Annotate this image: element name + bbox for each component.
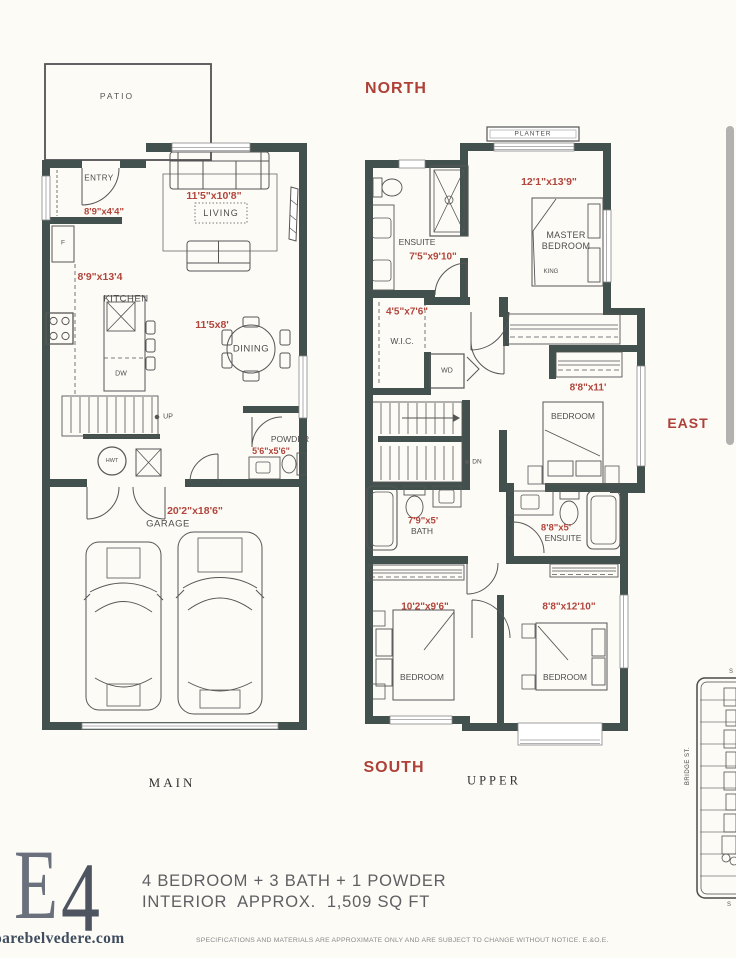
map-fragment-bottom: S (727, 902, 731, 908)
bedroom3-dimension: 10'2"x9'6" (401, 602, 449, 613)
ensuite2-dimension: 8'8"x5' (541, 523, 571, 534)
ensuite-label: ENSUITE (399, 237, 436, 247)
garage-label: GARAGE (146, 519, 190, 530)
upper-floor-title: UPPER (467, 774, 521, 789)
dining-label: DINING (233, 344, 269, 355)
master-bedroom-label: MASTER BEDROOM (540, 230, 592, 252)
garage-dimension: 20'2"x18'6" (167, 505, 223, 517)
stairs-up-label: UP (163, 414, 173, 421)
floorplan-page: PATIO ENTRY 8'9"x4'4" 11'5"x10'8" LIVING… (0, 0, 736, 958)
king-bed-label: KING (544, 269, 559, 275)
bridge-street-label: BRIDGE ST. (685, 747, 691, 785)
powder-label: POWDER (271, 434, 309, 444)
wic-label: W.I.C. (390, 336, 413, 346)
floorplan-drawing (0, 0, 736, 958)
compass-east-label: EAST (667, 415, 708, 431)
main-floor-plan (42, 64, 307, 730)
summary-line2: INTERIOR APPROX. 1,509 SQ FT (142, 893, 430, 912)
website-text: oarebelvedere.com (0, 930, 125, 948)
living-label: LIVING (203, 208, 239, 218)
hot-water-tank-label: HWT (106, 458, 119, 464)
living-dimension: 11'5"x10'8" (186, 190, 241, 202)
planter-label: PLANTER (515, 131, 552, 138)
entry-label: ENTRY (84, 174, 113, 183)
bedroom4-label: BEDROOM (543, 672, 587, 682)
site-map (697, 678, 736, 898)
disclaimer-text: SPECIFICATIONS AND MATERIALS ARE APPROXI… (196, 937, 609, 944)
upper-floor-plan (365, 127, 645, 745)
bath-dimension: 7'9"x5' (408, 516, 438, 527)
patio-label: PATIO (100, 91, 134, 101)
ensuite-dimension: 7'5"x9'10" (409, 252, 457, 263)
e4-logo-4: 4 (61, 859, 100, 937)
ensuite2-label: ENSUITE (545, 533, 582, 543)
powder-dimension: 5'6"x5'6" (252, 446, 290, 456)
bedroom2-label: BEDROOM (551, 411, 595, 421)
bedroom3-label: BEDROOM (400, 672, 444, 682)
dining-dimension: 11'5x8' (195, 319, 229, 331)
map-fragment-top: S (729, 669, 733, 675)
bath-label: BATH (411, 526, 433, 536)
scrollbar-thumb[interactable] (726, 126, 734, 445)
washer-dryer-label: WD (441, 368, 453, 375)
master-dimension: 12'1"x13'9" (521, 176, 577, 188)
e4-logo-e: E (14, 846, 58, 924)
dishwasher-label: DW (115, 371, 127, 378)
summary-line1: 4 BEDROOM + 3 BATH + 1 POWDER (142, 872, 446, 891)
fridge-label: F (61, 240, 65, 247)
compass-north-label: NORTH (365, 80, 427, 98)
kitchen-dimension: 8'9"x13'4 (77, 271, 122, 283)
entry-dimension: 8'9"x4'4" (84, 207, 124, 218)
main-floor-title: MAIN (149, 775, 196, 791)
wic-dimension: 4'5"x7'6" (386, 307, 428, 318)
kitchen-label: KITCHEN (103, 294, 148, 305)
e4-logo: E 4 (14, 846, 111, 924)
compass-south-label: SOUTH (364, 759, 425, 777)
bedroom4-dimension: 8'8"x12'10" (542, 602, 595, 613)
stairs-dn-label: DN (472, 459, 481, 466)
bedroom2-dimension: 8'8"x11' (570, 383, 607, 394)
